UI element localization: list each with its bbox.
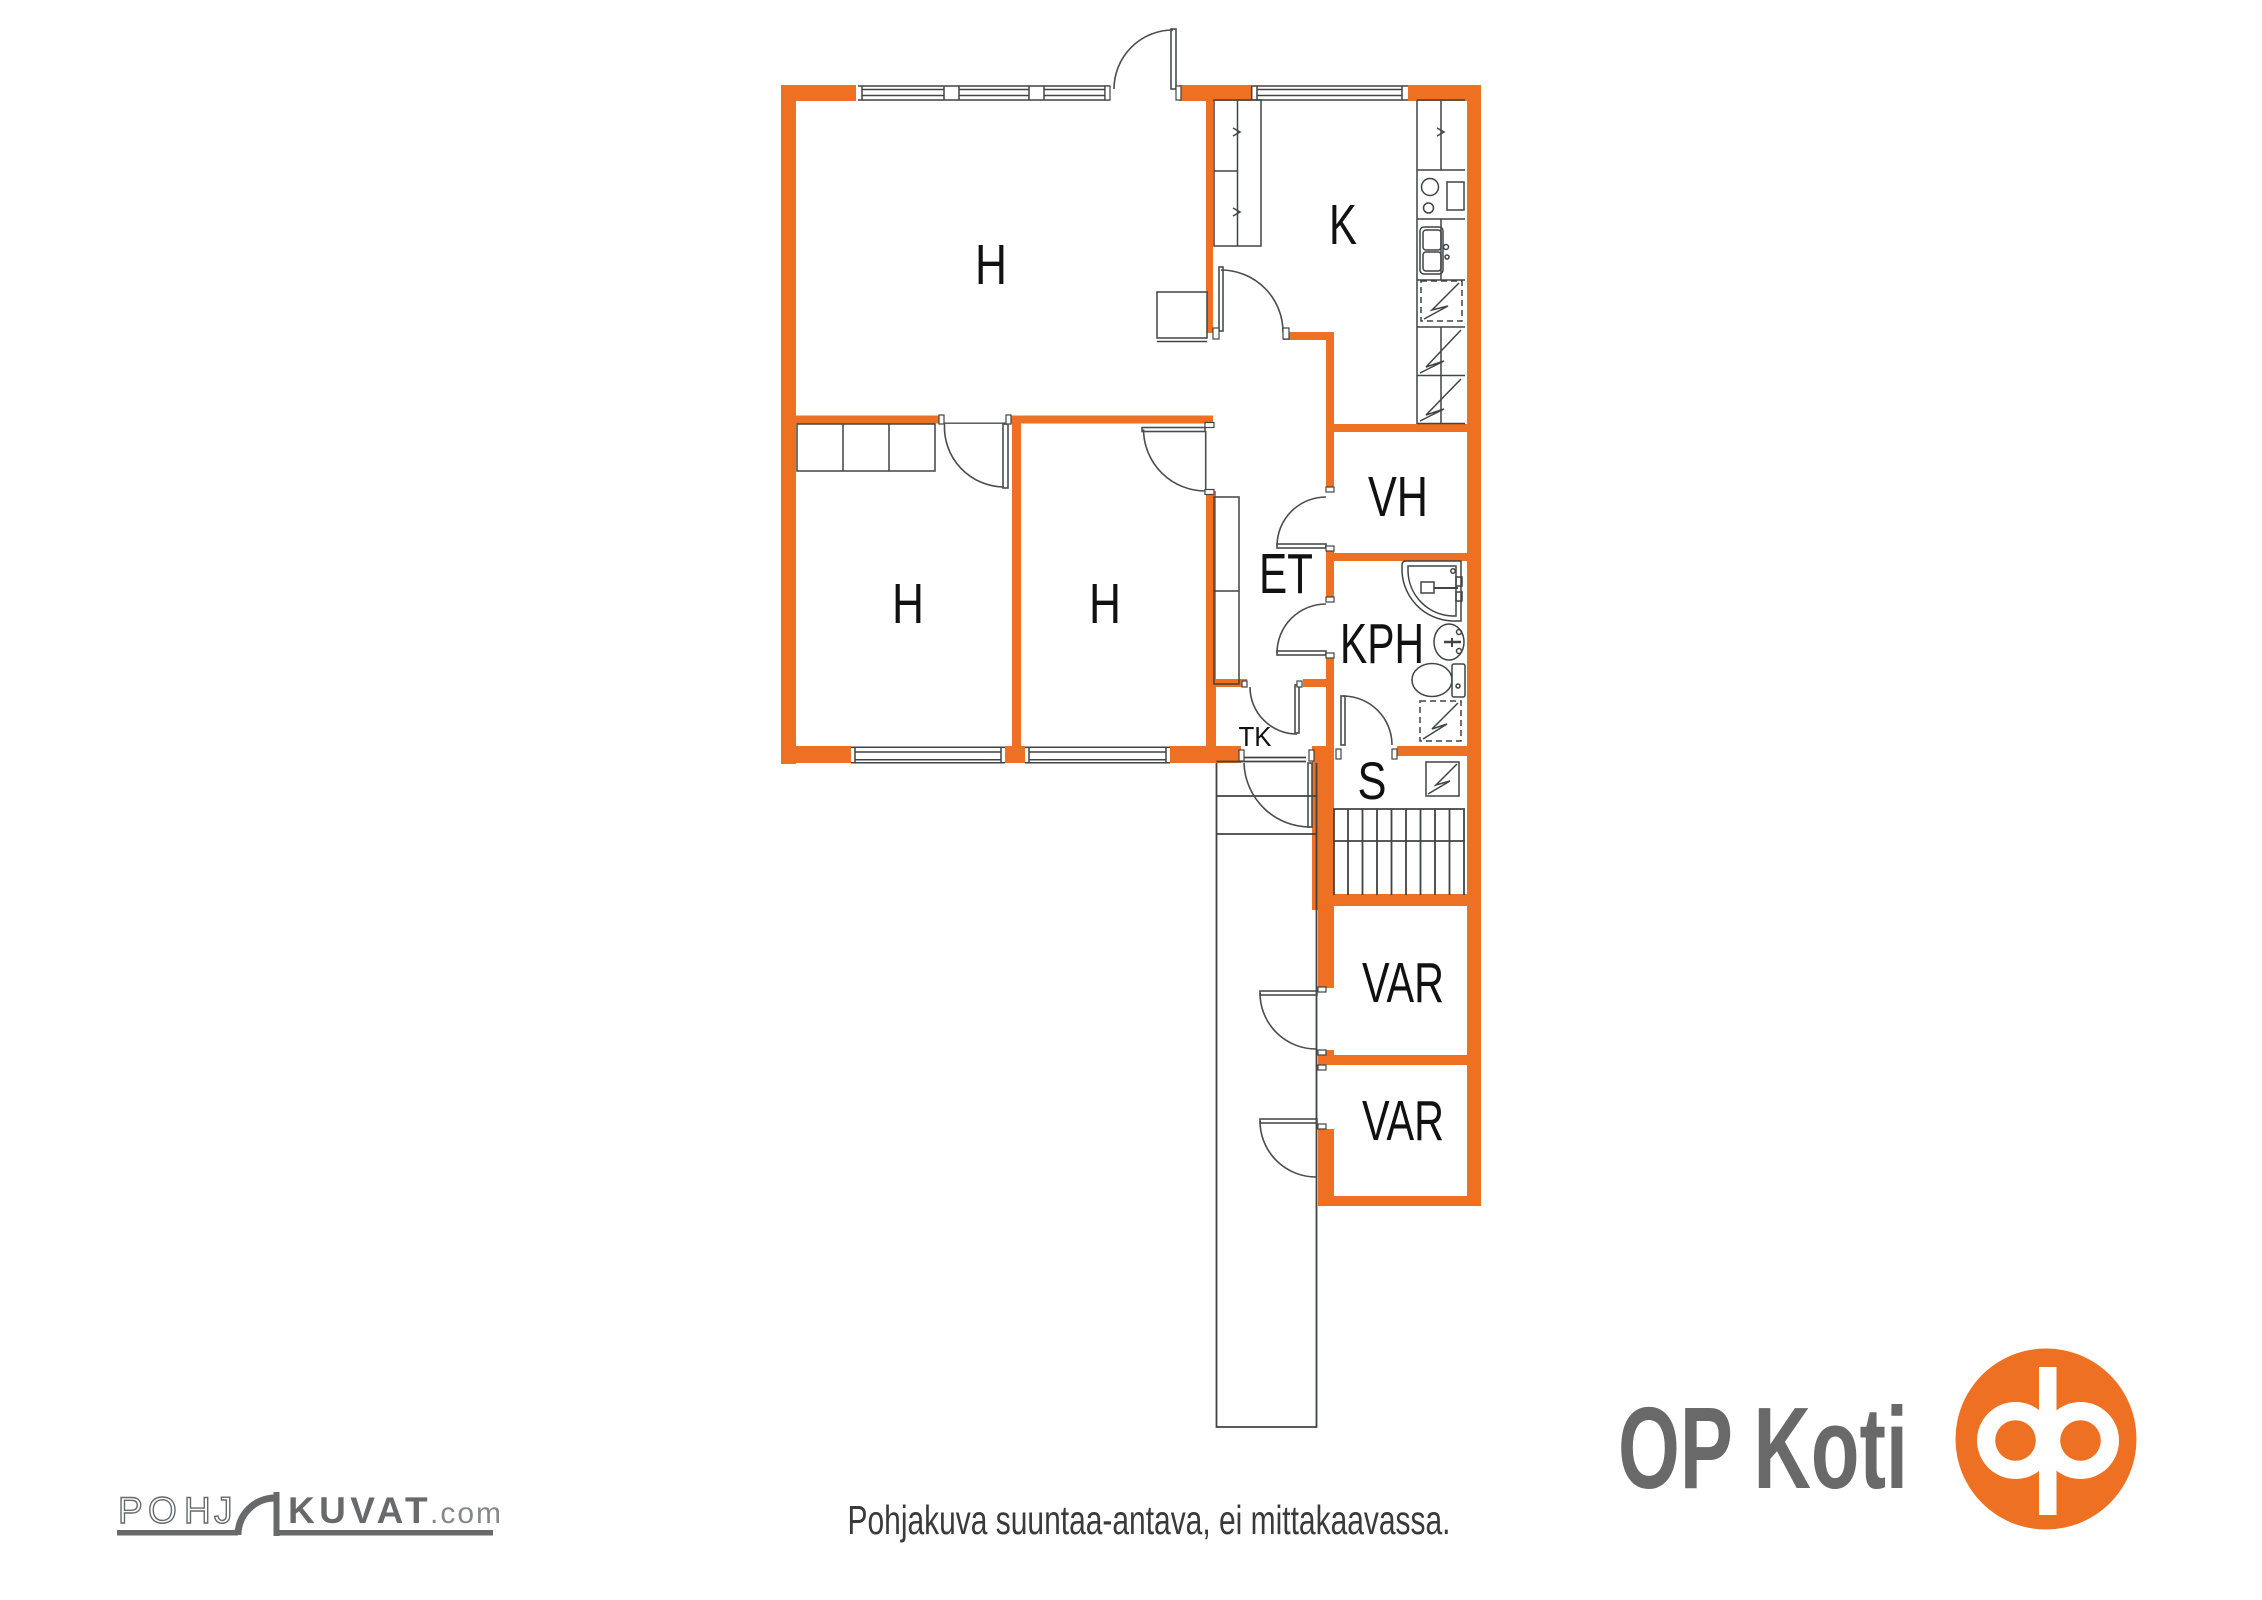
svg-text:H: H [184,1490,211,1531]
svg-text:J: J [214,1490,233,1531]
svg-text:H: H [892,572,924,636]
svg-text:KUVAT: KUVAT [288,1490,432,1531]
svg-text:P: P [118,1490,143,1531]
svg-text:VH: VH [1368,465,1428,529]
svg-text:VAR: VAR [1362,1089,1444,1153]
svg-text:OP Koti: OP Koti [1618,1383,1908,1513]
svg-text:TK: TK [1239,721,1272,752]
svg-text:O: O [148,1490,177,1531]
svg-text:.com: .com [430,1497,503,1530]
svg-text:S: S [1358,752,1387,811]
svg-text:VAR: VAR [1362,951,1444,1015]
svg-text:H: H [1089,572,1121,636]
svg-text:KPH: KPH [1340,612,1424,676]
svg-text:Pohjakuva suuntaa-antava, ei m: Pohjakuva suuntaa-antava, ei mittakaavas… [848,1497,1451,1543]
svg-text:ET: ET [1259,542,1313,606]
svg-text:K: K [1329,193,1357,257]
svg-text:H: H [975,233,1007,297]
